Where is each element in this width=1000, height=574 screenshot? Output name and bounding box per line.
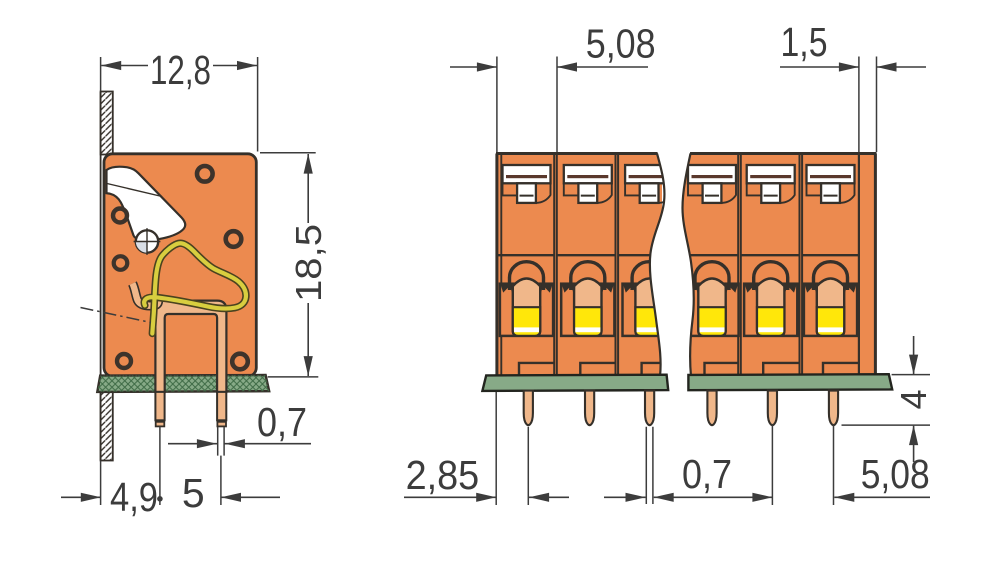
svg-text:1,5: 1,5 (781, 19, 828, 65)
svg-text:5,08: 5,08 (861, 451, 930, 497)
svg-text:12,8: 12,8 (150, 47, 211, 93)
svg-text:18,5: 18,5 (288, 224, 329, 302)
svg-text:4,9: 4,9 (110, 474, 158, 520)
svg-text:4: 4 (893, 389, 934, 409)
svg-text:0,7: 0,7 (257, 399, 307, 445)
svg-text:0,7: 0,7 (682, 451, 732, 497)
svg-text:5,08: 5,08 (586, 21, 656, 67)
svg-text:2,85: 2,85 (406, 452, 480, 498)
svg-text:5: 5 (182, 470, 205, 516)
